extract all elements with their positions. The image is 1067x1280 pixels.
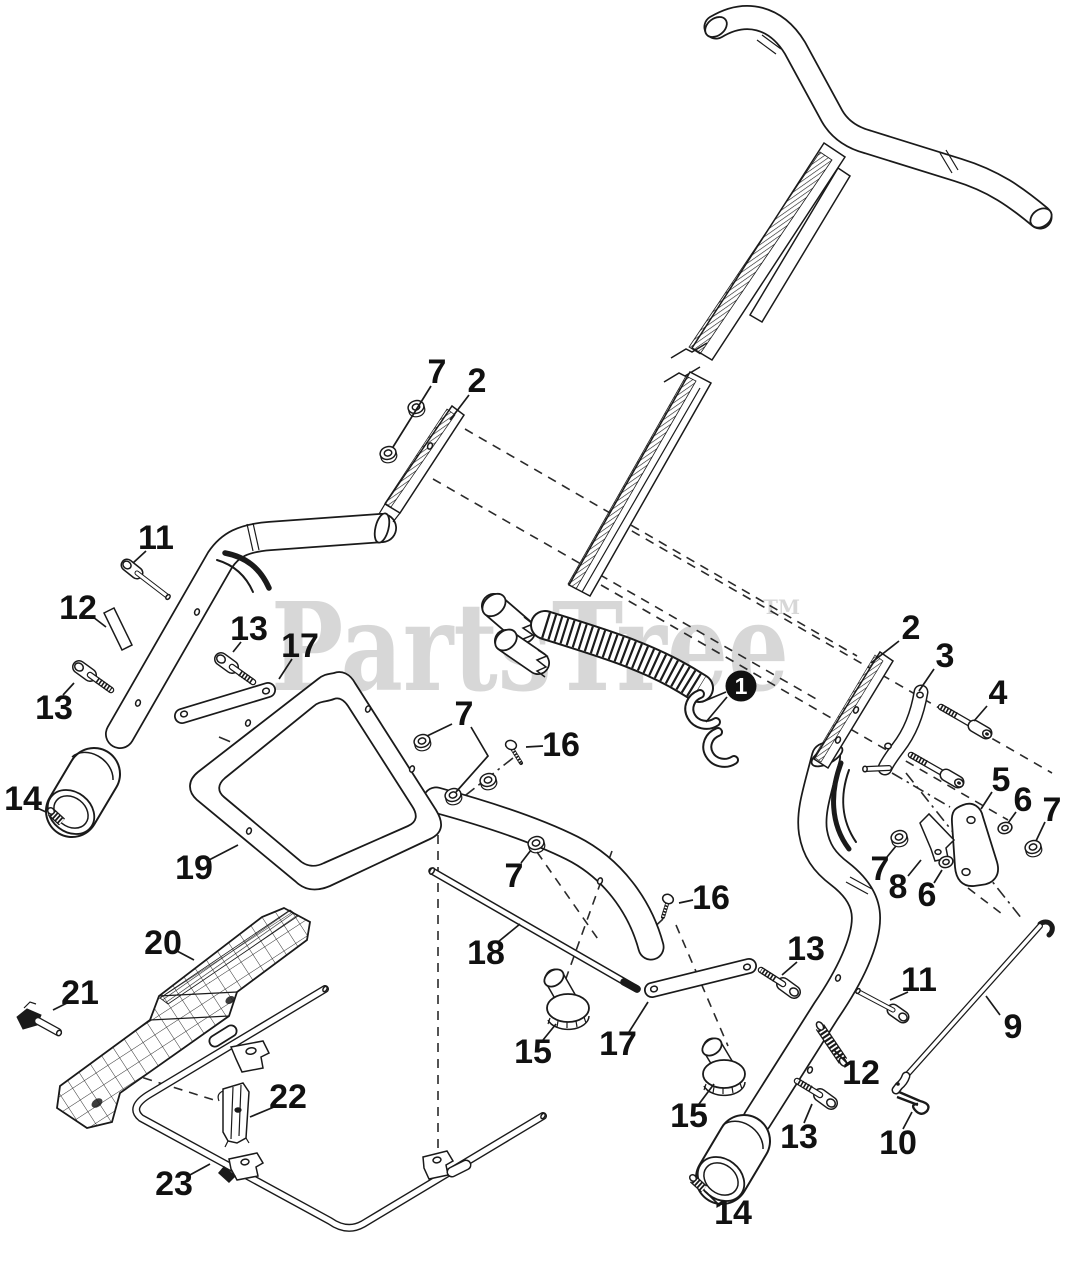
callout-number: 7 [505, 857, 524, 895]
callout-number: 9 [1004, 1008, 1023, 1046]
callout-number: 13 [787, 930, 825, 968]
callout-number: 20 [144, 924, 182, 962]
callout-number: 4 [989, 674, 1008, 712]
callout-number: 7 [455, 695, 474, 733]
callout-13[interactable]: 13 [35, 683, 74, 727]
callout-number: 11 [901, 961, 937, 999]
callout-number: 14 [4, 780, 42, 818]
callout-number: 17 [599, 1025, 637, 1063]
callout-number: 16 [692, 879, 730, 917]
callout-14[interactable]: 14 [4, 780, 46, 818]
callout-number: 6 [918, 876, 937, 914]
callout-number: 14 [714, 1194, 752, 1232]
callout-number: 2 [902, 609, 921, 647]
callout-leader-line [526, 746, 543, 747]
callout-number: 7 [428, 353, 447, 391]
callout-number: 23 [155, 1165, 193, 1203]
callout-number: 17 [281, 627, 319, 665]
callout-number: 8 [889, 868, 908, 906]
callout-number: 15 [514, 1033, 552, 1071]
callout-number: 19 [175, 849, 213, 887]
parts-diagram-page: PartsTree TM [0, 0, 1067, 1280]
callout-number: 13 [35, 689, 73, 727]
callout-number: 7 [871, 850, 890, 888]
callout-number: 13 [230, 610, 268, 648]
callout-number: 13 [780, 1118, 818, 1156]
callout-13[interactable]: 13 [230, 610, 268, 652]
parts-diagram: PartsTree TM [0, 0, 1067, 1280]
callout-number: 11 [138, 519, 174, 557]
callout-number: 1 [735, 673, 748, 699]
callout-number: 22 [269, 1078, 307, 1116]
callout-number: 12 [59, 589, 97, 627]
callout-number: 6 [1014, 781, 1033, 819]
callout-number: 7 [1043, 791, 1062, 829]
callout-number: 5 [992, 761, 1011, 799]
callout-number: 18 [467, 934, 505, 972]
watermark-tm: TM [763, 595, 800, 619]
callout-number: 3 [936, 637, 955, 675]
callout-11[interactable]: 11 [133, 519, 174, 563]
callout-number: 16 [542, 726, 580, 764]
callout-number: 15 [670, 1097, 708, 1135]
callout-number: 10 [879, 1124, 917, 1162]
callout-number: 12 [842, 1054, 880, 1092]
callout-number: 2 [468, 362, 487, 400]
callout-number: 21 [61, 974, 99, 1012]
